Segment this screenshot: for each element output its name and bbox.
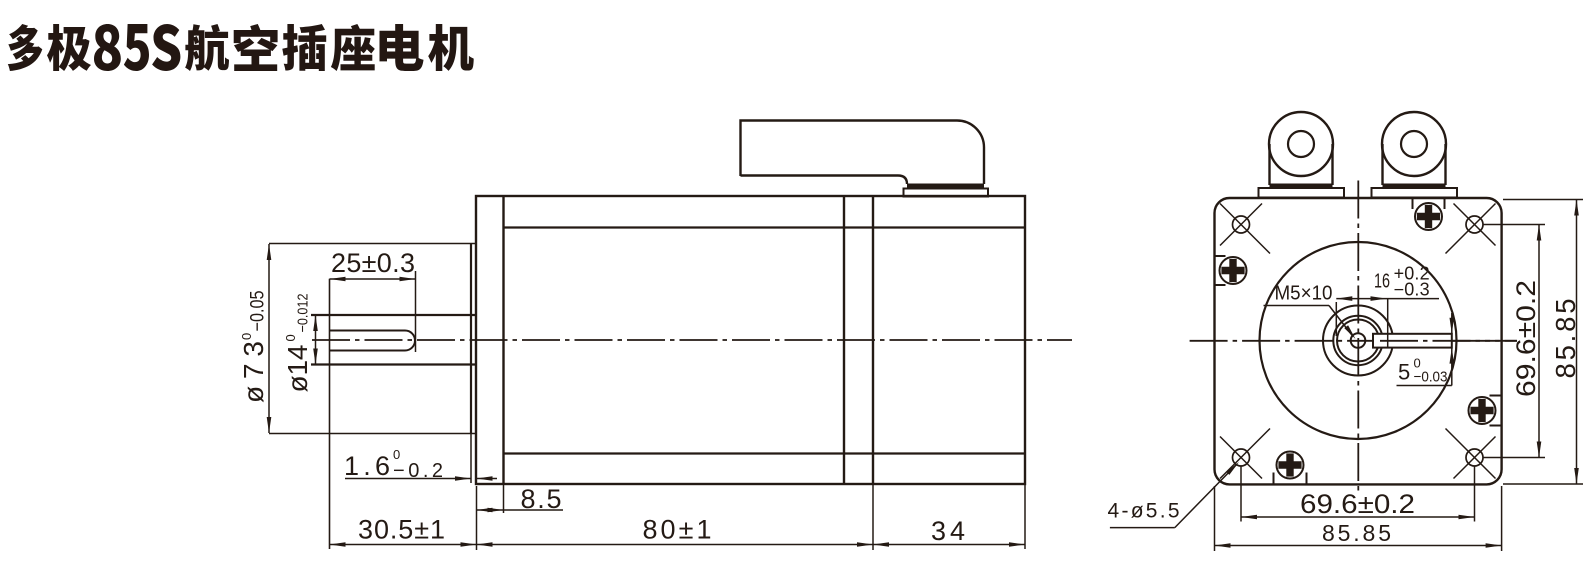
svg-text:8.5: 8.5 [521, 484, 562, 514]
svg-text:1.6: 1.6 [344, 451, 390, 481]
svg-text:0: 0 [239, 333, 254, 340]
svg-text:25±0.3: 25±0.3 [331, 248, 415, 278]
svg-text:69.6±0.2: 69.6±0.2 [1300, 489, 1415, 519]
svg-text:30.5±1: 30.5±1 [358, 515, 445, 545]
svg-text:5: 5 [1398, 360, 1410, 385]
svg-text:M5×10: M5×10 [1275, 283, 1333, 305]
svg-text:34: 34 [931, 516, 965, 546]
svg-text:69.6±0.2: 69.6±0.2 [1511, 280, 1541, 397]
svg-text:4-ø5.5: 4-ø5.5 [1108, 500, 1180, 523]
svg-text:−0.03: −0.03 [1414, 369, 1448, 386]
svg-text:ø73: ø73 [238, 341, 269, 403]
svg-text:0: 0 [283, 334, 298, 341]
svg-text:16: 16 [1374, 271, 1390, 293]
svg-text:−0.2: −0.2 [393, 460, 443, 482]
svg-text:80±1: 80±1 [643, 515, 712, 545]
svg-text:−0.05: −0.05 [248, 291, 269, 332]
svg-text:ø14: ø14 [282, 345, 313, 393]
svg-text:85.85: 85.85 [1322, 520, 1391, 546]
svg-text:−0.012: −0.012 [295, 294, 312, 333]
svg-text:85.85: 85.85 [1550, 299, 1581, 379]
svg-text:−0.3: −0.3 [1394, 279, 1430, 299]
